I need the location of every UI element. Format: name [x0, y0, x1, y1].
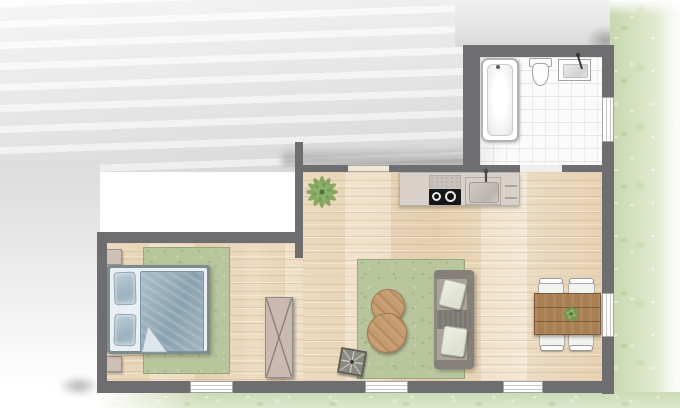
kitchen-faucet-icon — [484, 169, 489, 182]
bathtub-drain — [496, 65, 500, 69]
duvet-fold — [142, 326, 167, 352]
washbasin-faucet-icon — [576, 53, 582, 69]
wardrobe-x-pattern — [267, 299, 292, 377]
detail-overlay — [0, 0, 680, 408]
floor-plan — [0, 0, 680, 408]
dining-table-plant — [563, 306, 580, 323]
kitchen-potted-plant — [306, 176, 338, 208]
